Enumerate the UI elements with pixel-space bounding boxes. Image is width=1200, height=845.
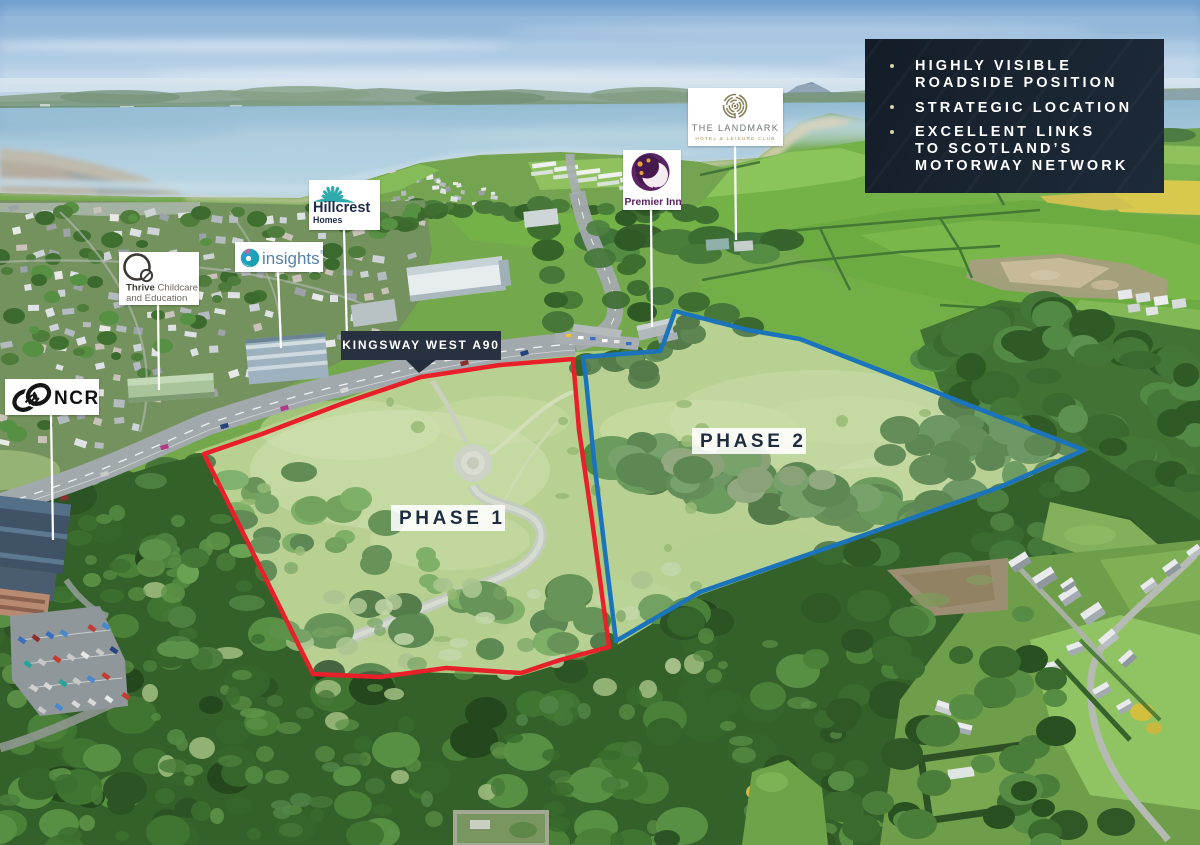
svg-text:®: ® bbox=[320, 249, 323, 256]
svg-text:NCR: NCR bbox=[54, 388, 99, 409]
svg-text:Homes: Homes bbox=[313, 215, 342, 225]
svg-text:PHASE 2: PHASE 2 bbox=[700, 431, 807, 452]
svg-text:PHASE 1: PHASE 1 bbox=[399, 508, 506, 529]
svg-text:and Education: and Education bbox=[126, 293, 187, 304]
svg-text:Premier Inn: Premier Inn bbox=[625, 197, 682, 208]
svg-text:THE LANDMARK: THE LANDMARK bbox=[692, 123, 779, 133]
svg-text:Thrive Childcare: Thrive Childcare bbox=[126, 283, 198, 294]
svg-text:HOTEL & LEISURE CLUB: HOTEL & LEISURE CLUB bbox=[695, 136, 775, 142]
svg-text:insights: insights bbox=[262, 249, 320, 268]
svg-text:Hillcrest: Hillcrest bbox=[313, 200, 370, 216]
